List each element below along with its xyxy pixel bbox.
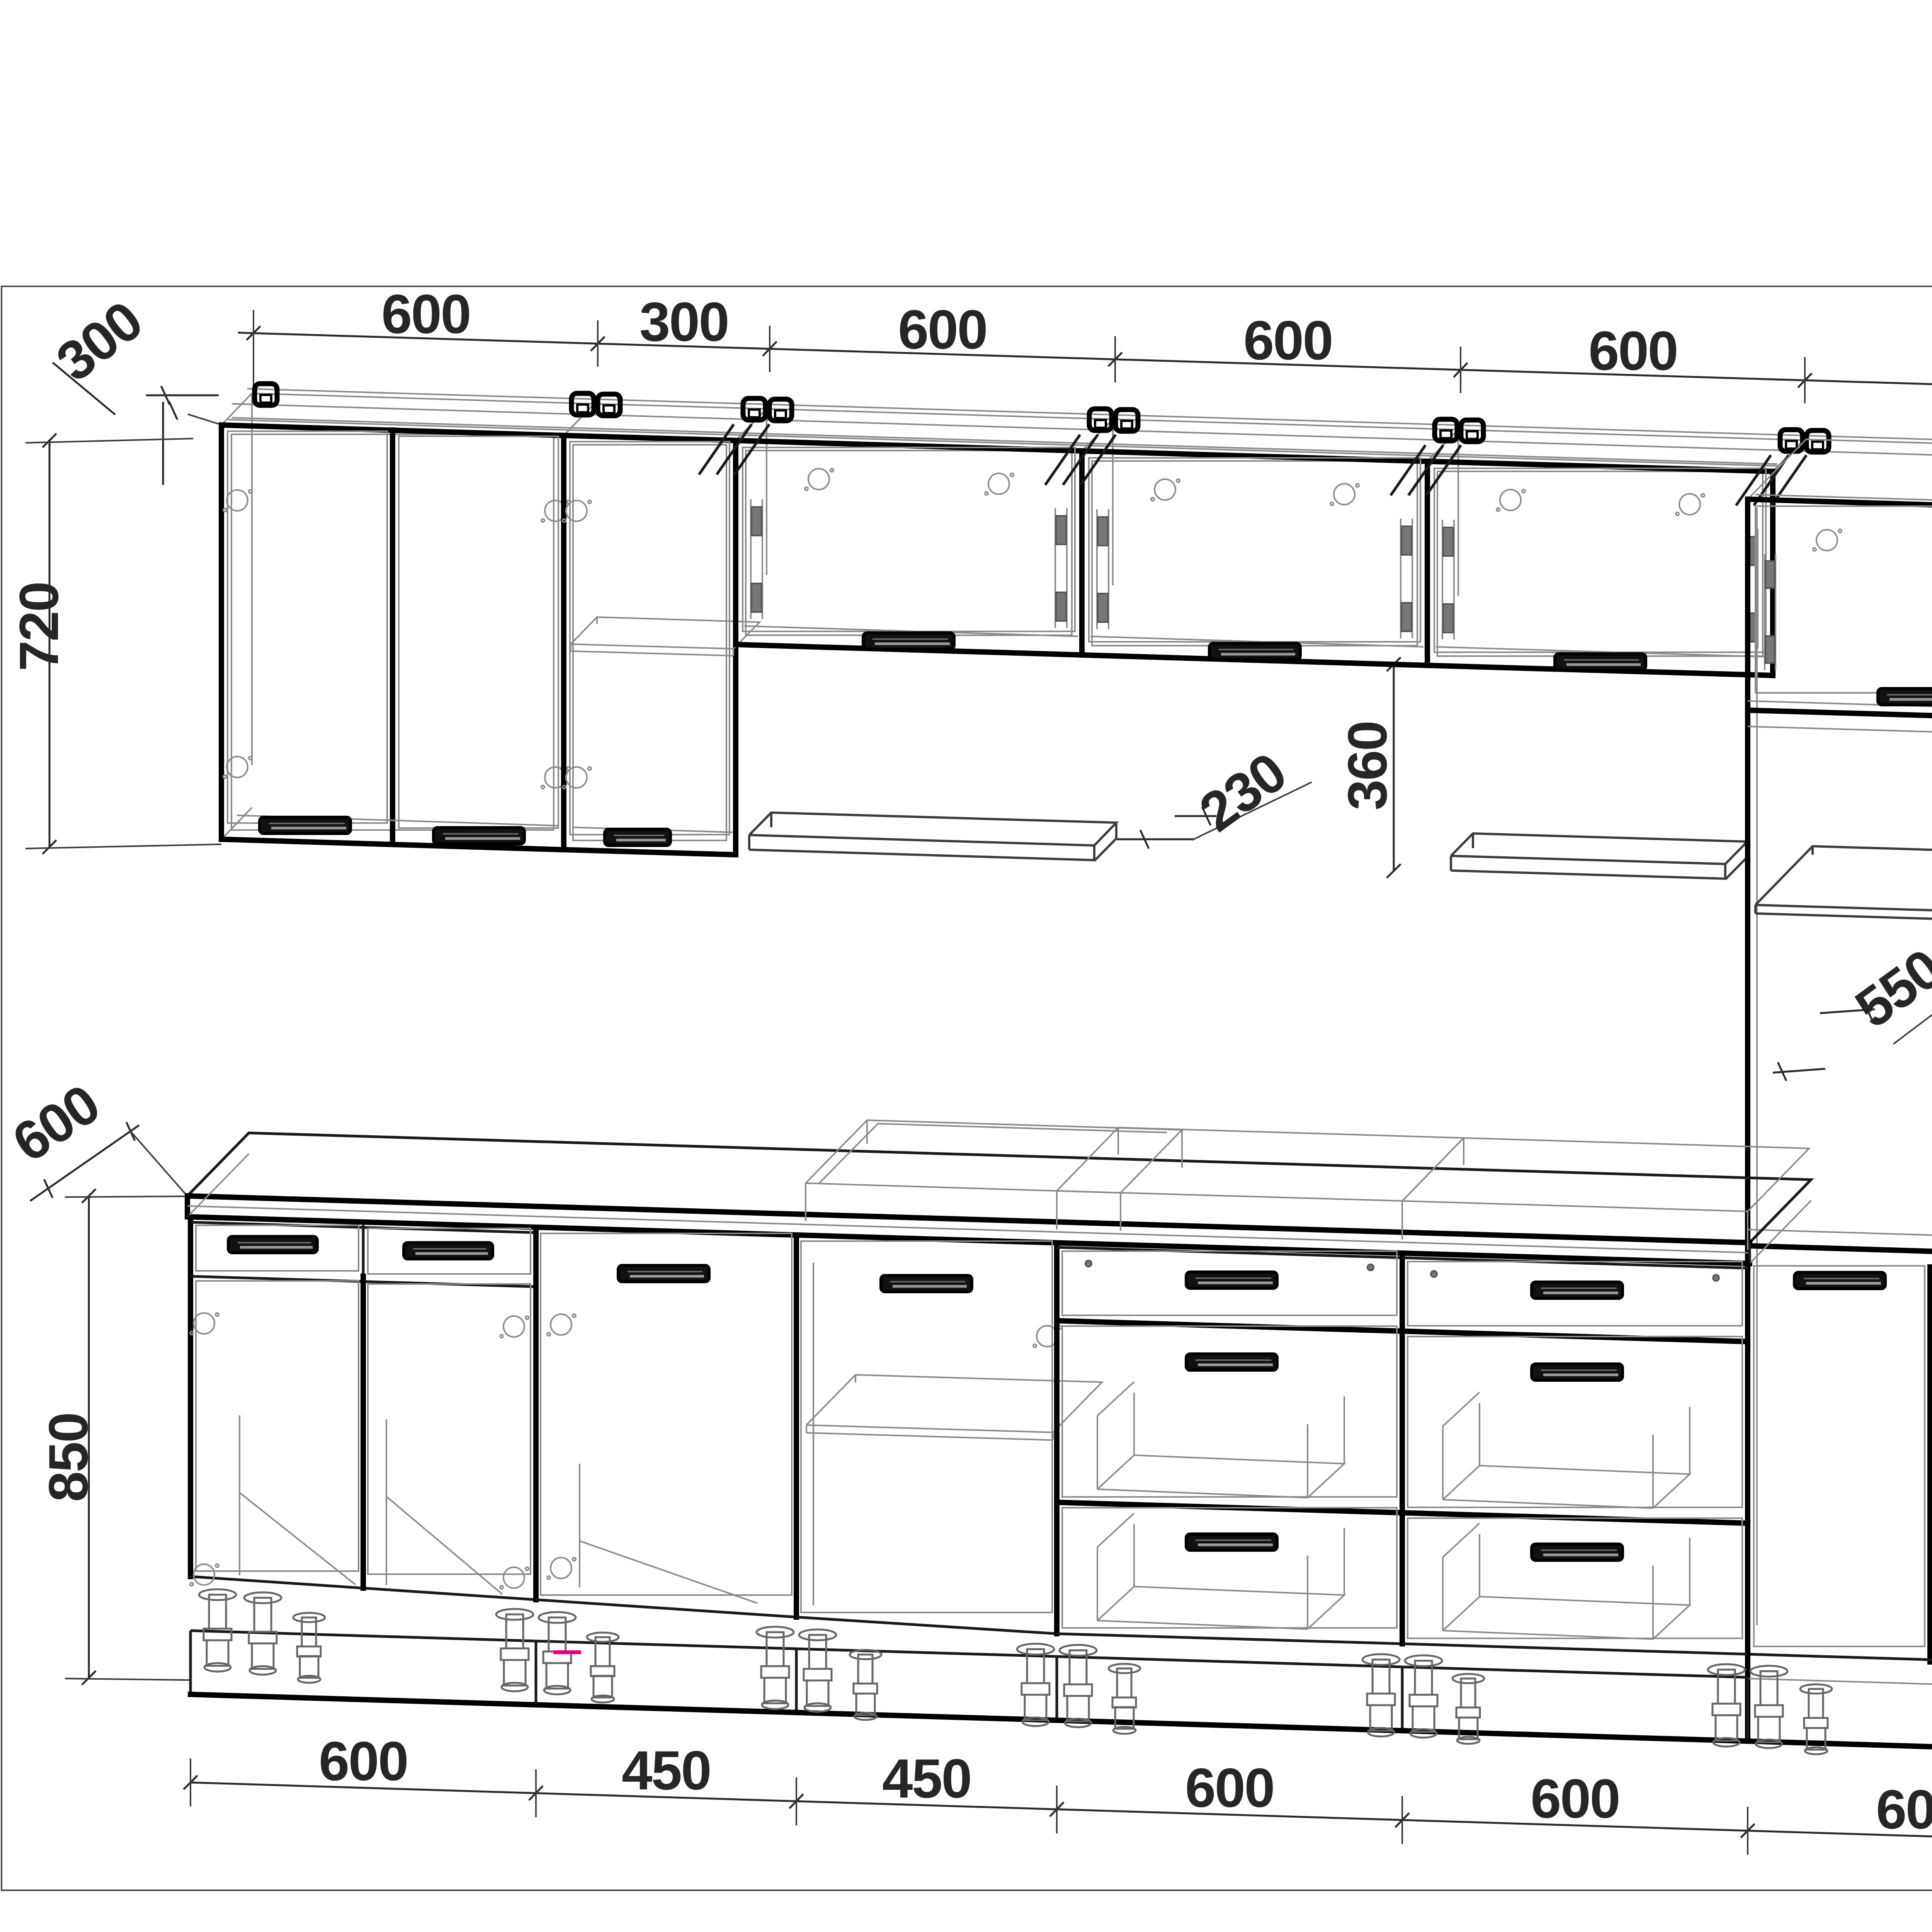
svg-text:360: 360 xyxy=(1337,721,1398,810)
svg-text:600: 600 xyxy=(319,1731,408,1792)
svg-text:600: 600 xyxy=(1588,320,1677,382)
svg-text:300: 300 xyxy=(639,291,728,353)
svg-text:600: 600 xyxy=(1876,1779,1932,1840)
svg-text:720: 720 xyxy=(9,582,70,671)
svg-text:600: 600 xyxy=(1243,310,1332,371)
svg-text:450: 450 xyxy=(622,1740,711,1801)
svg-text:600: 600 xyxy=(1185,1757,1274,1819)
svg-text:600: 600 xyxy=(381,284,470,345)
svg-text:600: 600 xyxy=(898,299,987,361)
svg-text:600: 600 xyxy=(1531,1768,1619,1830)
svg-text:850: 850 xyxy=(38,1413,99,1502)
svg-text:450: 450 xyxy=(882,1748,971,1810)
